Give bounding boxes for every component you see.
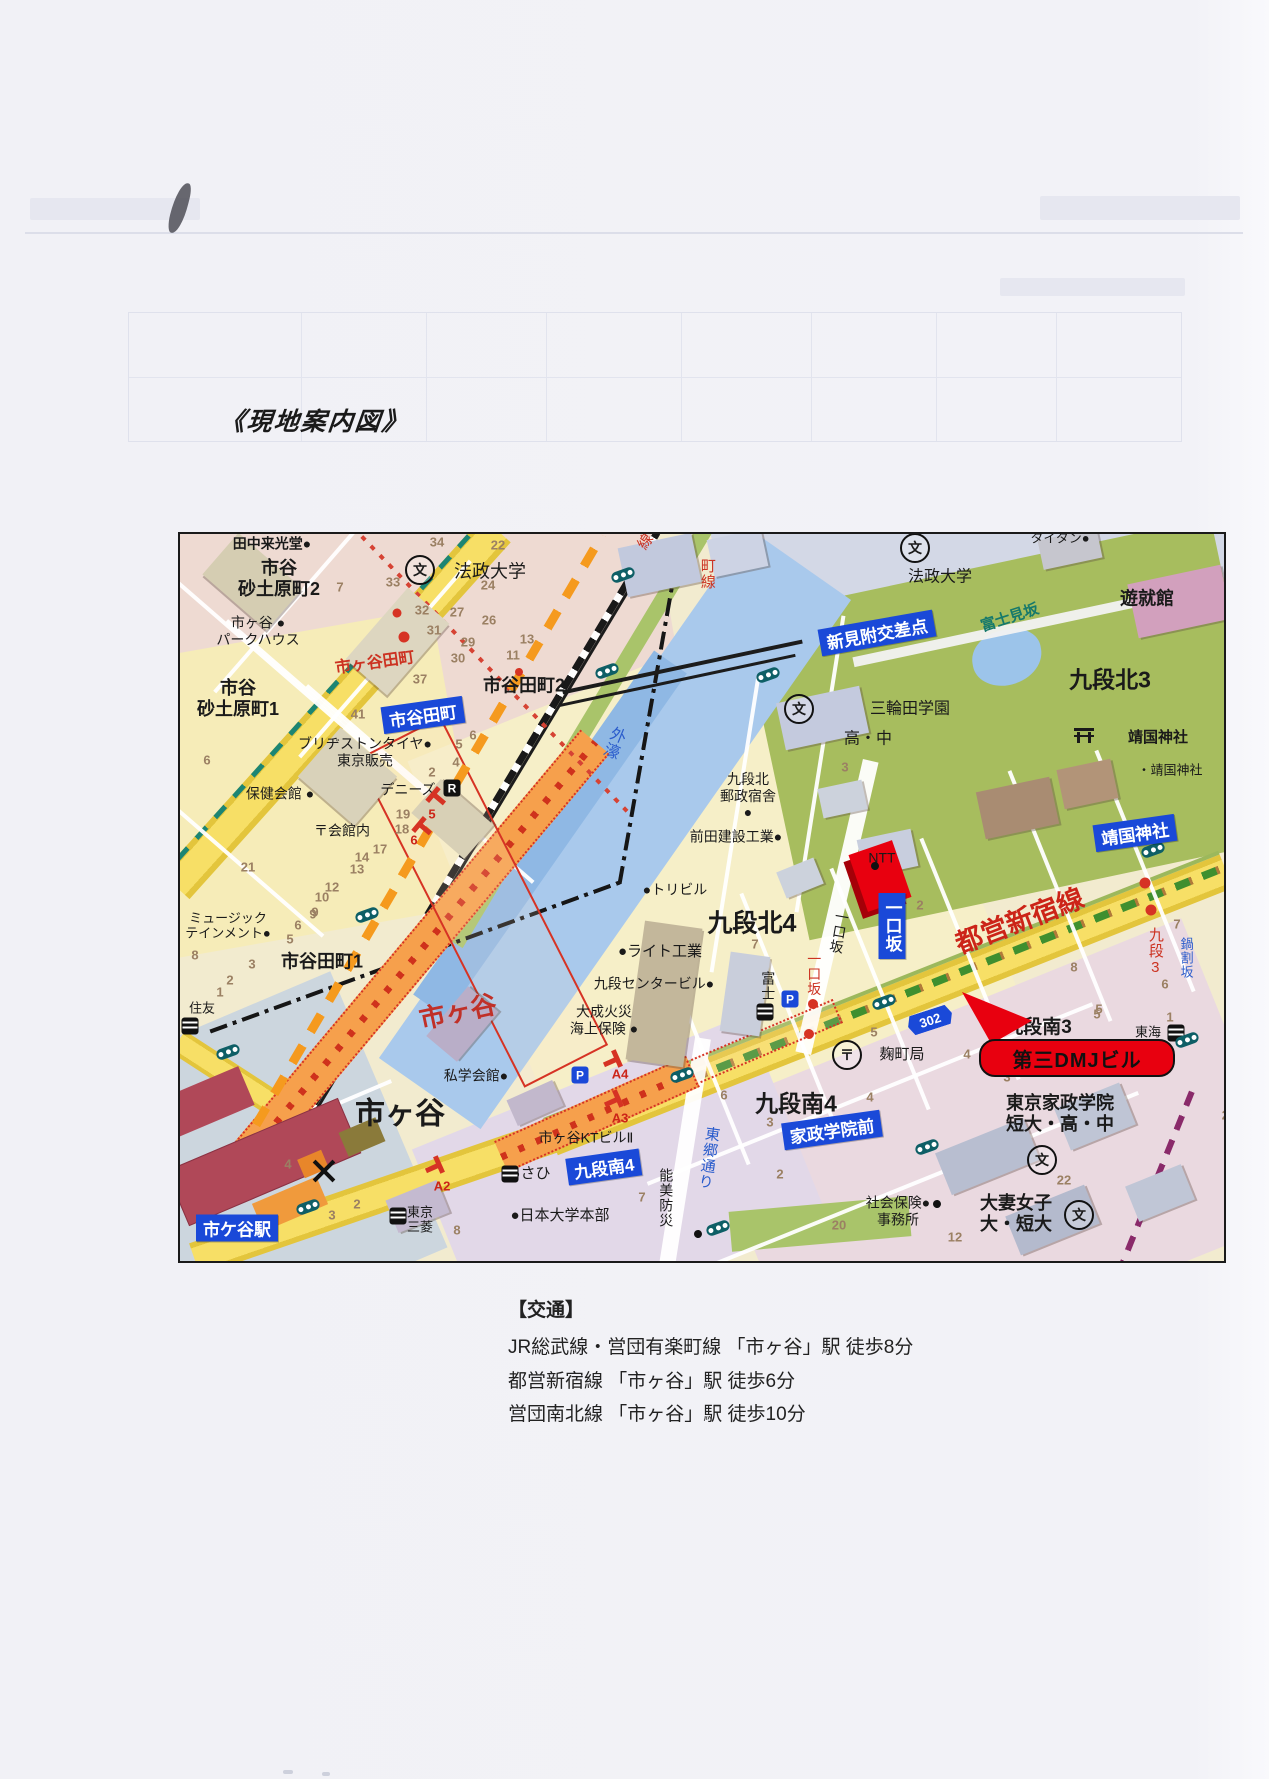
scan-mark <box>322 1772 330 1776</box>
map-label: 九段北3 <box>1069 666 1151 693</box>
lot-number: 18 <box>395 822 409 837</box>
bank-icon <box>390 1208 407 1225</box>
lot-number: 33 <box>386 575 400 590</box>
lot-number: 5 <box>1093 1007 1100 1022</box>
lot-number: 8 <box>453 1223 460 1238</box>
map-dot <box>693 1229 702 1238</box>
map-badge: 九段南4 <box>565 1148 643 1185</box>
lot-number: 4 <box>284 1157 291 1172</box>
map-dot <box>932 1199 941 1208</box>
traffic-light-icon <box>871 993 897 1012</box>
map-label: 九段センタービル● <box>594 976 714 993</box>
map-label: 東海 <box>1135 1024 1161 1039</box>
lot-number: 27 <box>450 605 464 620</box>
lot-number: 8 <box>1070 960 1077 975</box>
traffic-light-icon <box>295 1198 321 1217</box>
map-label: 〒会館内 <box>314 823 370 840</box>
map-badge: 新見附交差点 <box>818 610 937 657</box>
bleed-through-artifact <box>1040 196 1240 220</box>
map-label: 富士 <box>760 971 777 1001</box>
map-label: ブリヂストンタイヤ● 東京販売 <box>298 735 432 768</box>
lot-number: 4 <box>866 1090 873 1105</box>
bank-icon <box>757 1004 774 1021</box>
map-label: 線 <box>634 532 657 553</box>
traffic-light-icon <box>914 1138 940 1157</box>
access-list: JR総武線・営団有楽町線 「市ヶ谷」駅 徒歩8分都営新宿線 「市ヶ谷」駅 徒歩6… <box>508 1331 913 1431</box>
lot-number: 4 <box>963 1047 970 1062</box>
map-label: ●トリビル <box>643 882 707 899</box>
lot-number: 6 <box>410 833 417 848</box>
map-label: 市ヶ谷 <box>417 989 500 1035</box>
lot-number: 20 <box>832 1218 846 1233</box>
traffic-light-icon <box>755 666 781 685</box>
lot-number: 6 <box>720 1088 727 1103</box>
map-label: 九段北4 <box>708 909 797 939</box>
map-dot <box>392 608 402 618</box>
map-label: 一口坂 <box>806 952 823 997</box>
map-label: 大成火災 海上保険 ● <box>570 1003 638 1036</box>
lot-number: 2 <box>916 898 923 913</box>
lot-number: 24 <box>1222 1108 1226 1123</box>
map-label: ●日本大学本部 <box>510 1207 609 1225</box>
lot-number: 9 <box>309 907 316 922</box>
lot-number: 7 <box>1173 917 1180 932</box>
lot-number: 3 <box>328 1208 335 1223</box>
school-icon: 文 <box>405 555 435 585</box>
map-label: 法政大学 <box>454 561 526 582</box>
map-dot <box>1139 877 1152 890</box>
access-line: JR総武線・営団有楽町線 「市ヶ谷」駅 徒歩8分 <box>508 1331 913 1364</box>
lot-number: 5 <box>455 737 462 752</box>
lot-number: 1 <box>1166 1010 1173 1025</box>
traffic-light-icon <box>705 1219 731 1238</box>
lot-number: 6 <box>469 728 476 743</box>
map-label: 大妻女子 大・短大 <box>980 1193 1052 1235</box>
map-label: 市ヶ谷KTビルⅡ <box>539 1130 634 1147</box>
lot-number: 32 <box>415 603 429 618</box>
lot-number: 21 <box>241 860 255 875</box>
scan-mark <box>283 1770 293 1774</box>
map-label: A4 <box>612 1066 629 1081</box>
access-line: 営団南北線 「市ヶ谷」駅 徒歩10分 <box>508 1398 913 1431</box>
map-dot <box>803 1028 815 1040</box>
map-label: 田中来光堂● <box>233 536 311 553</box>
lot-number: 6 <box>294 918 301 933</box>
lot-number: 10 <box>315 890 329 905</box>
map-label: 九段南4 <box>755 1090 837 1117</box>
map-label: 外濠 <box>597 723 627 762</box>
map-label: 九段3 <box>1146 927 1164 977</box>
map-dot <box>1145 904 1158 917</box>
map-badge: 一口坂 <box>879 893 906 959</box>
lot-number: 13 <box>520 632 534 647</box>
map-badge: 市ケ谷駅 <box>196 1215 278 1242</box>
parking-icon: P <box>572 1067 589 1084</box>
bleed-through-artifact <box>1000 278 1185 296</box>
map-label: 町線 <box>698 558 716 590</box>
lot-number: 8 <box>191 948 198 963</box>
map-label: 能美防災 <box>658 1168 675 1228</box>
map-label: 遊就館 <box>1120 588 1174 609</box>
map-label: 東京 三菱 <box>407 1205 433 1236</box>
map-label: 保健会館 ● <box>246 786 314 803</box>
map-label: 鍋割坂 <box>1178 937 1193 979</box>
lot-number: 19 <box>396 807 410 822</box>
map-label: 三輪田学園 <box>870 701 950 720</box>
map-overlay: 田中来光堂●市谷 砂土原町2法政大学市ヶ谷 ● パークハウス市ヶ谷田町市谷 砂土… <box>180 534 1224 1261</box>
map-label: 私学会館● <box>444 1068 508 1085</box>
lot-number: 17 <box>373 842 387 857</box>
map-label: 富士見坂 <box>979 600 1042 635</box>
school-icon: 文 <box>784 694 814 724</box>
map-label: 麹町局 <box>879 1046 924 1064</box>
parking-icon: P <box>782 991 799 1008</box>
traffic-light-icon <box>669 1066 695 1085</box>
map-label: 市ヶ谷田町 <box>334 649 416 679</box>
traffic-light-icon <box>354 906 380 925</box>
lot-number: 4 <box>452 755 459 770</box>
lot-number: 30 <box>451 651 465 666</box>
lot-number: 5 <box>286 932 293 947</box>
map-label: 高・中 <box>844 731 892 750</box>
traffic-light-icon <box>215 1043 241 1062</box>
lot-number: 22 <box>491 538 505 553</box>
map-label: 都営新宿線 <box>951 883 1088 961</box>
map-label: A3 <box>612 1110 629 1125</box>
map-label: 市谷田町2 <box>483 675 565 696</box>
lot-number: 7 <box>751 937 758 952</box>
map-label: ●ライト工業 <box>618 943 702 961</box>
lot-number: 5 <box>428 807 435 822</box>
lot-number: 7 <box>638 1190 645 1205</box>
school-icon: 文 <box>900 533 930 563</box>
access-heading: 【交通】 <box>508 1294 913 1327</box>
access-section: 【交通】 JR総武線・営団有楽町線 「市ヶ谷」駅 徒歩8分都営新宿線 「市ヶ谷」… <box>508 1294 913 1431</box>
map-label: 靖国神社 <box>1128 729 1188 747</box>
map-label: 法政大学 <box>908 569 972 588</box>
map-label: タイタン● <box>1030 532 1089 546</box>
map-label: 東京家政学院 短大・高・中 <box>1006 1093 1114 1135</box>
lot-number: 34 <box>430 535 444 550</box>
lot-number: 2 <box>353 1197 360 1212</box>
school-icon: 文 <box>1064 1200 1094 1230</box>
bank-icon <box>182 1018 199 1035</box>
map-label: 市ヶ谷 <box>355 1096 445 1131</box>
map-label: 市ヶ谷 ● パークハウス <box>216 614 299 647</box>
restaurant-icon: R <box>444 780 461 797</box>
lot-number: 1 <box>216 985 223 1000</box>
lot-number: 37 <box>413 672 427 687</box>
map-label: 九段北 郵政宿舎 ● <box>720 771 776 821</box>
route-302-shield: 302 <box>905 1003 955 1036</box>
daisan-dmj-callout: 第三DMJビル <box>979 1039 1175 1077</box>
site-map: 第三DMJビル 田中来光堂●市谷 砂土原町2法政大学市ヶ谷 ● パークハウス市ヶ… <box>178 532 1226 1263</box>
map-badge: 市谷田町 <box>381 696 466 734</box>
lot-number: 29 <box>461 635 475 650</box>
map-label: ミュージック テインメント● <box>185 911 270 942</box>
bank-icon <box>502 1166 519 1183</box>
map-dot <box>807 998 819 1010</box>
lot-number: 6 <box>203 753 210 768</box>
access-line: 都営新宿線 「市ヶ谷」駅 徒歩6分 <box>508 1365 913 1398</box>
traffic-light-icon <box>594 662 620 681</box>
map-label: A2 <box>434 1178 451 1193</box>
map-label: 住友 <box>189 1000 215 1015</box>
map-label: ・靖国神社 <box>1137 762 1202 777</box>
bleed-through-rule <box>25 232 1243 234</box>
map-label: 市谷田町1 <box>281 951 363 972</box>
map-dot <box>398 631 411 644</box>
lot-number: 13 <box>350 862 364 877</box>
lot-number: 31 <box>427 623 441 638</box>
lot-number: 2 <box>776 1167 783 1182</box>
map-label: 前田建設工業● <box>690 829 782 846</box>
post-office-icon: 〒 <box>832 1040 862 1070</box>
map-label: 一口坂 <box>827 908 851 955</box>
lot-number: 2 <box>226 973 233 988</box>
torii-icon <box>1074 728 1094 746</box>
map-label: 東郷通り <box>695 1125 721 1191</box>
map-label: NTT <box>868 850 895 867</box>
lot-number: 3 <box>248 957 255 972</box>
lot-number: 3 <box>841 760 848 775</box>
map-label: 社会保険● 事務所 <box>866 1194 930 1227</box>
lot-number: 7 <box>336 580 343 595</box>
lot-number: 26 <box>482 613 496 628</box>
lot-number: 6 <box>1161 977 1168 992</box>
scanned-document-page: 《現地案内図》 <box>0 0 1269 1779</box>
lot-number: 11 <box>506 648 520 663</box>
page-title: 《現地案内図》 <box>218 402 411 438</box>
lot-number: 5 <box>870 1025 877 1040</box>
traffic-light-icon <box>610 566 636 585</box>
lot-number: 22 <box>1057 1173 1071 1188</box>
map-label: 市谷 砂土原町1 <box>197 678 279 720</box>
lot-number: 12 <box>948 1230 962 1245</box>
school-icon: 文 <box>1027 1145 1057 1175</box>
map-label: 市谷 砂土原町2 <box>238 558 320 600</box>
lot-number: 41 <box>351 707 365 722</box>
